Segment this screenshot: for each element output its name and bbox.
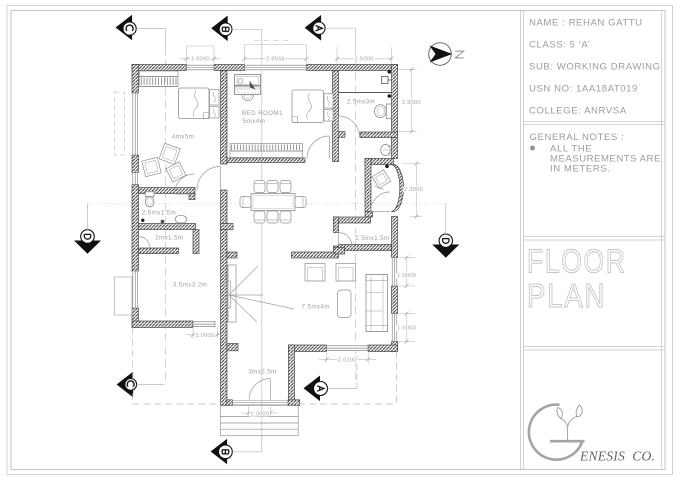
svg-text:GENERAL NOTES :: GENERAL NOTES :: [530, 132, 625, 143]
svg-text:2.5mx3m: 2.5mx3m: [347, 99, 375, 106]
svg-text:PLAN: PLAN: [527, 277, 606, 314]
svg-text:CLASS: 5 ‘A’: CLASS: 5 ‘A’: [529, 40, 590, 51]
svg-text:NAME : REHAN GATTU: NAME : REHAN GATTU: [529, 18, 643, 29]
svg-text:1.0000: 1.0000: [195, 333, 214, 339]
svg-text:2.5000: 2.5000: [355, 56, 374, 62]
svg-text:1.0000: 1.0000: [191, 56, 210, 62]
svg-text:2.5mx1.5m: 2.5mx1.5m: [355, 235, 389, 242]
svg-text:5mx4m: 5mx4m: [243, 118, 265, 125]
svg-text:IN METERS.: IN METERS.: [550, 164, 610, 175]
svg-text:1.0000: 1.0000: [397, 273, 416, 279]
svg-text:2.5mx1.5m: 2.5mx1.5m: [142, 210, 176, 217]
svg-text:BED ROOM1: BED ROOM1: [242, 110, 283, 117]
svg-text:3.5mx3.2m: 3.5mx3.2m: [173, 282, 207, 289]
svg-text:SUB: WORKING DRAWING: SUB: WORKING DRAWING: [529, 62, 661, 73]
svg-text:2.9000: 2.9000: [402, 100, 421, 106]
svg-text:1.0000: 1.0000: [250, 411, 269, 417]
svg-text:2.3000: 2.3000: [404, 187, 423, 193]
svg-text:FLOOR: FLOOR: [527, 243, 627, 280]
svg-text:1.0000: 1.0000: [397, 325, 416, 331]
svg-text:USN NO: 1AA18AT019: USN NO: 1AA18AT019: [529, 84, 638, 95]
svg-text:2mx1.5m: 2mx1.5m: [155, 235, 183, 242]
svg-text:2.8556: 2.8556: [266, 56, 285, 62]
svg-text:2.0100: 2.0100: [338, 357, 357, 363]
svg-text:4mx5m: 4mx5m: [172, 134, 194, 141]
svg-text:7.5mx4m: 7.5mx4m: [302, 304, 330, 311]
svg-text:COLLEGE: ANRVSA: COLLEGE: ANRVSA: [529, 106, 627, 117]
svg-text:ENESIS CO.: ENESIS CO.: [579, 449, 655, 464]
svg-text:3mx2.5m: 3mx2.5m: [248, 369, 276, 376]
